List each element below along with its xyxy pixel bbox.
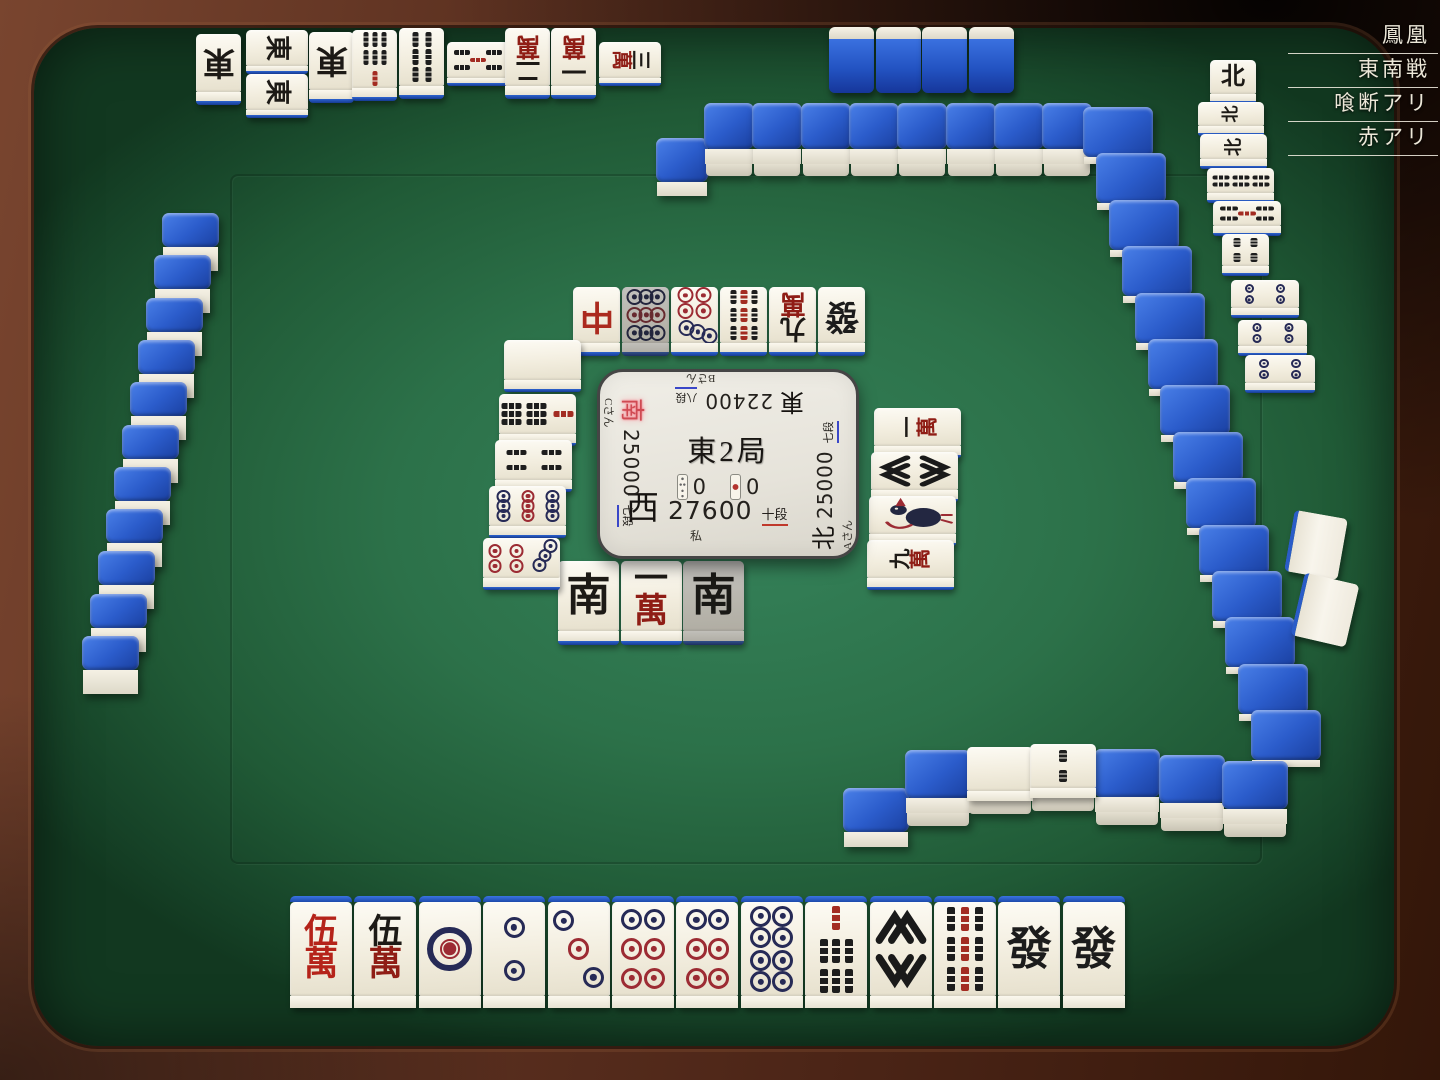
tile-side <box>1245 383 1315 390</box>
game-length-label: 東南戦 <box>1288 54 1438 88</box>
seat-wind-top: 東 <box>780 387 804 422</box>
rule-aka-label: 赤アリ <box>1288 122 1438 156</box>
discard-left-7p <box>483 538 560 590</box>
tile-side <box>309 90 354 99</box>
meld-tile-ton: 東 <box>309 32 354 103</box>
tile-back-edge <box>1222 273 1269 276</box>
hand-tile-8s[interactable] <box>870 896 932 1008</box>
hand-tile-1p[interactable] <box>419 896 481 1008</box>
opponent-hand-tile-back <box>922 27 967 93</box>
tile-back-edge <box>447 83 509 86</box>
wall-tile-back <box>849 103 899 176</box>
wall-tile-back <box>656 138 708 196</box>
wall-tile-back <box>82 636 139 694</box>
tile-back-edge <box>818 352 865 356</box>
tile-back-edge <box>196 101 241 105</box>
opponent-hand-tile-back <box>876 27 921 93</box>
tile-side <box>352 88 397 97</box>
tile-side <box>1210 94 1256 101</box>
tile-back-edge <box>483 587 560 590</box>
meld-tile-4s <box>1222 234 1269 276</box>
wall-tile-back <box>1159 755 1225 831</box>
tile-back-edge <box>551 95 596 99</box>
meld-tile-pei: 北 <box>1210 60 1256 104</box>
meld-tile-4p <box>1231 280 1299 318</box>
rank-right: 七段 <box>820 421 839 443</box>
meld-tile-2m: 二萬 <box>505 28 550 99</box>
wall-tile-back <box>1222 761 1288 837</box>
tile-back-edge <box>399 95 444 99</box>
seat-wind-right: 北 <box>804 526 839 550</box>
tile-side <box>483 996 545 1008</box>
opponent-hand-tile-back <box>829 27 874 93</box>
tile-back-edge <box>558 641 619 645</box>
tile-back-edge <box>671 352 718 356</box>
discard-right-1m: 一萬 <box>874 408 961 458</box>
meld-tile-4p <box>1238 320 1307 356</box>
dora-indicator-haku <box>967 747 1033 801</box>
meld-tile-4p <box>1245 355 1315 393</box>
discard-top-9p <box>622 287 669 356</box>
tile-side <box>967 791 1033 801</box>
player-name-right: Aさん <box>839 398 855 550</box>
score-right: 25000 <box>813 450 837 519</box>
wall-tile-back <box>946 103 996 176</box>
meld-tile-3m: 三萬 <box>599 42 661 86</box>
discard-left-haku <box>504 340 581 392</box>
seat-wind-left: 南 <box>617 398 652 422</box>
tile-side <box>867 578 954 587</box>
meld-tile-ton: 東 <box>246 30 308 74</box>
opponent-hand-tile-back <box>969 27 1014 93</box>
tile-side <box>551 86 596 95</box>
discard-right-1s <box>869 496 956 546</box>
tile-back-edge <box>621 641 682 645</box>
tile-back-edge <box>1245 390 1315 393</box>
wall-tile-back <box>843 788 909 847</box>
discard-top-9s <box>720 287 767 356</box>
discard-top-9m: 九萬 <box>769 287 816 356</box>
discard-left-4s <box>495 440 572 492</box>
hand-tile-8p[interactable] <box>741 896 803 1008</box>
tile-back-edge <box>720 352 767 356</box>
tile-side <box>998 996 1060 1008</box>
tile-side <box>676 996 738 1008</box>
discard-right-9m: 九萬 <box>867 540 954 590</box>
hand-tile-3p[interactable] <box>548 896 610 1008</box>
meld-tile-7s <box>352 30 397 101</box>
meld-tile-1m: 一萬 <box>551 28 596 99</box>
tile-side <box>419 996 481 1008</box>
tile-side <box>1231 308 1299 315</box>
hand-tile-hatsu[interactable]: 發 <box>1063 896 1125 1008</box>
discard-self-nan: 南 <box>683 561 744 645</box>
score-self: 27600 <box>668 496 753 525</box>
tile-side <box>399 86 444 95</box>
mahjong-table-view: 鳳凰 東南戦 喰断アリ 赤アリ 東東東東二萬一萬三萬北北北南一萬南中九萬發一萬九… <box>0 0 1440 1080</box>
rank-self: 十段 <box>762 504 788 526</box>
tile-side <box>612 996 674 1008</box>
hand-tile-6p[interactable] <box>612 896 674 1008</box>
wall-tile-back <box>897 103 947 176</box>
wall-tile-back <box>704 103 754 176</box>
tile-back-edge <box>309 99 354 103</box>
tile-side <box>934 996 996 1008</box>
tile-side <box>671 343 718 352</box>
tile-side <box>196 92 241 101</box>
tile-side <box>741 996 803 1008</box>
player-info-right: 北 25000 七段 Aさん <box>804 398 850 550</box>
tile-back-edge <box>867 587 954 590</box>
player-name-top: Bさん <box>652 371 804 387</box>
wall-tile-back <box>752 103 802 176</box>
player-info-left: 南 25000 七段 Cさん <box>606 398 652 550</box>
wall-tile-back <box>905 750 971 826</box>
tile-side <box>1238 346 1307 353</box>
hand-tile-5m[interactable]: 伍萬 <box>354 896 416 1008</box>
meld-tile-ton: 東 <box>246 74 308 118</box>
tile-side <box>1198 126 1264 133</box>
tile-back-edge <box>769 352 816 356</box>
meld-tile-5s <box>447 42 509 86</box>
opponent-hand-tile-side <box>1284 510 1348 580</box>
tile-side <box>354 996 416 1008</box>
tile-side <box>483 578 560 587</box>
player-name-left: Cさん <box>601 398 617 550</box>
tile-side <box>1030 788 1096 798</box>
tile-side <box>769 343 816 352</box>
tile-side <box>622 343 669 352</box>
wall-tile-back <box>1030 798 1096 811</box>
tile-side <box>720 343 767 352</box>
tile-side <box>1207 193 1274 200</box>
rank-left: 七段 <box>617 505 636 527</box>
room-info: 鳳凰 東南戦 喰断アリ 赤アリ <box>1288 20 1438 156</box>
tile-side <box>505 86 550 95</box>
meld-tile-ton: 東 <box>196 34 241 105</box>
rank-top: 八段 <box>675 387 697 406</box>
wall-tile-back <box>967 801 1033 814</box>
tile-side <box>1222 266 1269 273</box>
discard-self-nan: 南 <box>558 561 619 645</box>
wall-tile-back <box>801 103 851 176</box>
wall-tile-back <box>994 103 1044 176</box>
tile-side <box>548 996 610 1008</box>
tile-side <box>1213 226 1281 233</box>
tile-side <box>1200 159 1267 166</box>
tile-side <box>290 996 352 1008</box>
discard-top-7p <box>671 287 718 356</box>
player-info-top: 東 22400 八段 Bさん <box>652 376 804 422</box>
tile-side <box>1063 996 1125 1008</box>
room-name: 鳳凰 <box>1288 20 1438 54</box>
meld-tile-pei: 北 <box>1200 134 1267 169</box>
tile-side <box>489 526 566 535</box>
score-top: 22400 <box>704 389 773 413</box>
tile-side <box>621 631 682 641</box>
discard-self-1m: 一萬 <box>621 561 682 645</box>
hand-tile-6p[interactable] <box>676 896 738 1008</box>
tile-side <box>870 996 932 1008</box>
tile-back-edge <box>246 115 308 118</box>
hand-tile-2p[interactable] <box>483 896 545 1008</box>
dora-indicator-2s <box>1030 744 1096 798</box>
score-left: 25000 <box>619 429 643 498</box>
tile-back-edge <box>1231 315 1299 318</box>
hand-tile-7s[interactable] <box>805 896 867 1008</box>
discard-left-7s <box>499 394 576 446</box>
meld-tile-5s <box>1213 201 1281 236</box>
tile-back-edge <box>504 389 581 392</box>
tile-back-edge <box>683 641 744 645</box>
discard-left-9p <box>489 486 566 538</box>
meld-tile-6s <box>1207 168 1274 203</box>
meld-tile-pei: 北 <box>1198 102 1264 136</box>
score-panel: 東2局 0 0 西 27600 十段 私 東 22400 八段 Bさん 南 25… <box>597 369 859 559</box>
discard-top-hatsu: 發 <box>818 287 865 356</box>
hand-tile-5mr[interactable]: 伍萬 <box>290 896 352 1008</box>
tile-back-edge <box>352 97 397 101</box>
hand-tile-9s[interactable] <box>934 896 996 1008</box>
tile-back-edge <box>505 95 550 99</box>
tile-side <box>805 996 867 1008</box>
rule-kuitan-label: 喰断アリ <box>1288 88 1438 122</box>
tile-side <box>558 631 619 641</box>
meld-tile-6s <box>399 28 444 99</box>
tile-side <box>683 631 744 641</box>
discard-right-8s <box>871 452 958 502</box>
wall-tile-back <box>1251 710 1321 767</box>
tile-back-edge <box>599 83 661 86</box>
tile-side <box>818 343 865 352</box>
tile-back-edge <box>622 352 669 356</box>
hand-tile-hatsu[interactable]: 發 <box>998 896 1060 1008</box>
tile-side <box>504 380 581 389</box>
wall-tile-back <box>1094 749 1160 825</box>
